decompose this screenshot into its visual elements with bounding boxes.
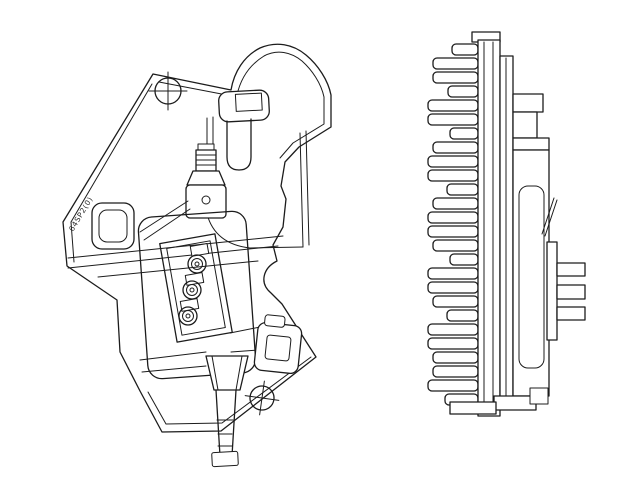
fin — [433, 72, 478, 83]
left-tab — [92, 203, 134, 249]
fin — [450, 128, 478, 139]
terminal-lug — [180, 299, 198, 312]
fin — [448, 86, 478, 97]
top-steps — [513, 94, 549, 150]
shaft-foot — [212, 451, 239, 466]
fin — [450, 254, 478, 265]
terminal-lug — [185, 273, 203, 286]
fin — [433, 58, 478, 69]
fin — [428, 170, 478, 181]
second-plate — [500, 56, 513, 408]
fin — [428, 324, 478, 335]
terminal-1 — [188, 255, 206, 273]
fin — [433, 366, 478, 377]
side-view — [428, 32, 585, 416]
fin — [428, 212, 478, 223]
mold-marking-text: 64SP2(0) — [67, 195, 95, 233]
fin — [447, 310, 478, 321]
housing-panel — [519, 186, 544, 368]
shaft — [206, 356, 248, 467]
fin — [433, 240, 478, 251]
fin — [428, 114, 478, 125]
fin — [428, 282, 478, 293]
fin — [447, 184, 478, 195]
fin — [428, 156, 478, 167]
fin — [433, 198, 478, 209]
resistor-body — [137, 210, 256, 379]
drawing-canvas: 64SP2(0) — [0, 0, 640, 480]
fin — [428, 226, 478, 237]
fin — [428, 268, 478, 279]
fin — [433, 296, 478, 307]
pin-3 — [557, 307, 585, 320]
fin — [433, 352, 478, 363]
lower-bar — [140, 352, 206, 372]
pin-2 — [557, 285, 585, 299]
canister-cap-boss — [235, 93, 262, 111]
fin — [428, 380, 478, 391]
ridge-lines — [140, 201, 190, 240]
mounting-hole-top — [149, 72, 187, 110]
fin — [428, 338, 478, 349]
front-view: 64SP2(0) — [63, 44, 331, 466]
fin — [452, 44, 478, 55]
pin-1 — [557, 263, 585, 276]
fin — [433, 142, 478, 153]
thermal-plug — [186, 144, 226, 218]
sensor-canister — [207, 90, 309, 248]
mounting-hole-bottom — [243, 379, 281, 417]
connector-pins — [547, 242, 585, 340]
canister-capsule — [227, 119, 251, 170]
technical-drawing: 64SP2(0) — [0, 0, 640, 480]
heatsink-fins — [428, 44, 478, 405]
fin — [428, 100, 478, 111]
